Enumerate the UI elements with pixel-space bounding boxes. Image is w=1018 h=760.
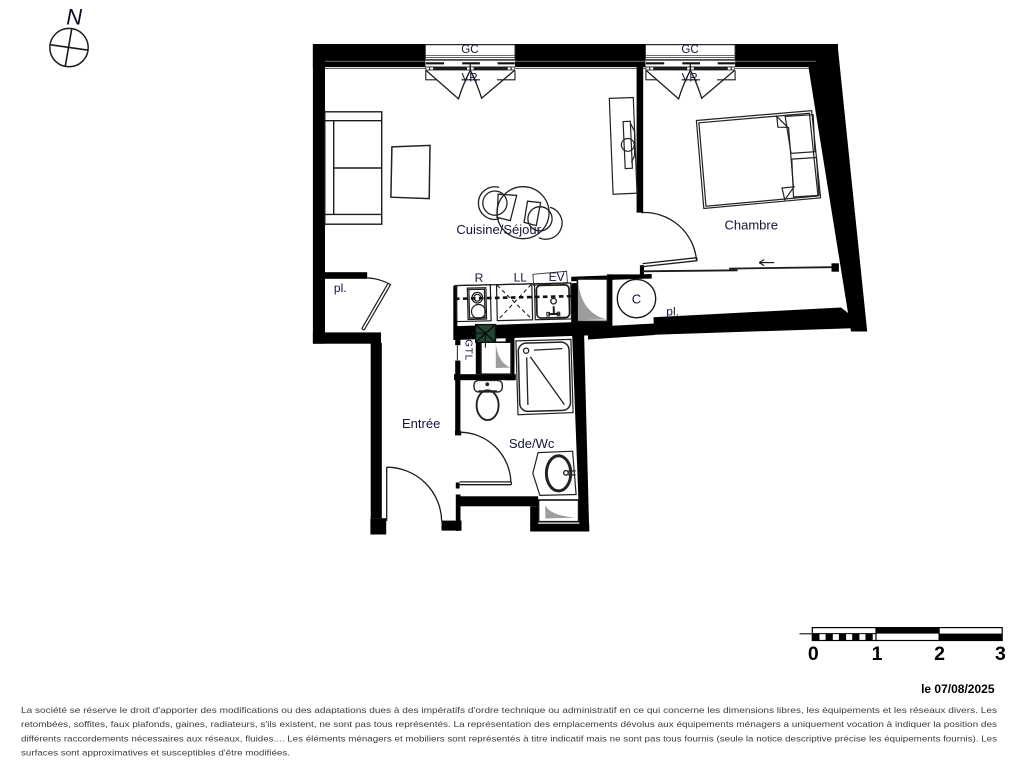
svg-text:GC: GC bbox=[681, 44, 698, 56]
svg-text:VR: VR bbox=[462, 73, 478, 85]
svg-text:le 07/08/2025: le 07/08/2025 bbox=[921, 682, 995, 696]
svg-text:Chambre: Chambre bbox=[725, 218, 778, 233]
svg-text:surfaces sont approximatives e: surfaces sont approximatives et suscepti… bbox=[21, 749, 290, 758]
svg-text:N: N bbox=[66, 5, 82, 30]
svg-text:différents raccordements néces: différents raccordements nécessaires aux… bbox=[21, 734, 997, 743]
svg-text:La société se réserve le droit: La société se réserve le droit d'apporte… bbox=[21, 706, 997, 715]
svg-text:pl.: pl. bbox=[334, 281, 347, 295]
svg-text:3: 3 bbox=[995, 643, 1006, 665]
svg-text:GTL: GTL bbox=[462, 339, 473, 361]
svg-text:Cuisine/Séjour: Cuisine/Séjour bbox=[456, 222, 541, 237]
svg-text:retombées, soffites, faux plaf: retombées, soffites, faux plafonds, gain… bbox=[21, 720, 997, 729]
svg-text:C: C bbox=[632, 291, 641, 306]
svg-text:VR: VR bbox=[682, 73, 698, 85]
svg-text:0: 0 bbox=[808, 643, 819, 665]
svg-text:GC: GC bbox=[461, 44, 478, 56]
svg-text:Sde/Wc: Sde/Wc bbox=[509, 436, 555, 451]
svg-text:pl.: pl. bbox=[666, 305, 679, 319]
svg-text:LL: LL bbox=[514, 271, 528, 285]
svg-text:1: 1 bbox=[872, 643, 883, 665]
svg-text:EV: EV bbox=[549, 270, 565, 284]
svg-text:2: 2 bbox=[934, 643, 945, 665]
svg-text:Entrée: Entrée bbox=[402, 416, 440, 431]
svg-text:R: R bbox=[475, 271, 484, 285]
